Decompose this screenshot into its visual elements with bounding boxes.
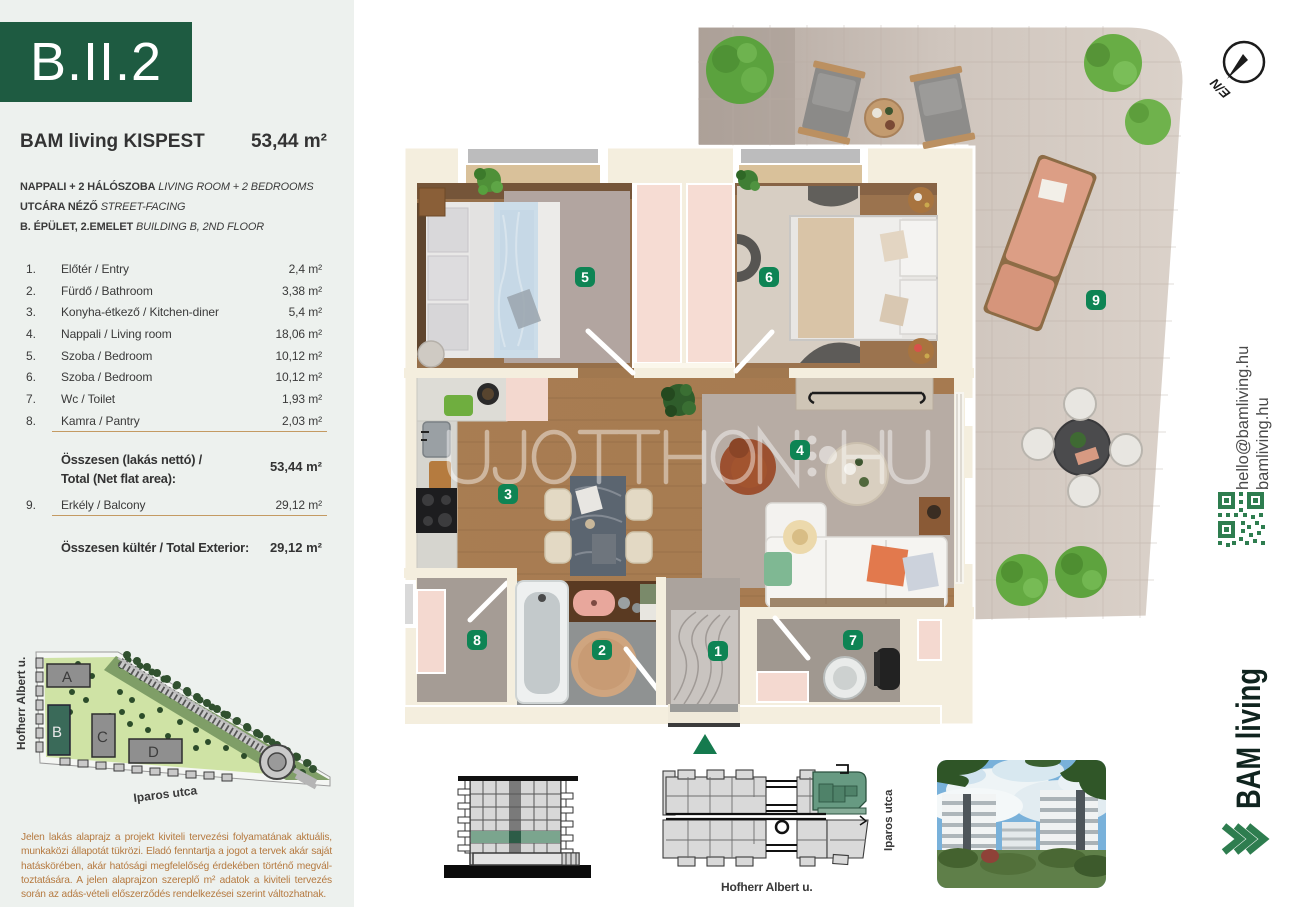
svg-text:bamliving.hu: bamliving.hu [1254,397,1272,490]
svg-text:A: A [62,669,72,686]
svg-text:BAM living: BAM living [1230,668,1268,809]
svg-text:4: 4 [796,442,804,458]
svg-text:C: C [97,729,108,746]
svg-text:5: 5 [581,269,589,285]
svg-text:B: B [52,724,62,741]
svg-text:8: 8 [473,632,481,648]
svg-text:6: 6 [765,269,773,285]
svg-text:Iparos utca: Iparos utca [133,783,199,805]
svg-text:9: 9 [1092,292,1100,308]
svg-text:hello@bamliving.hu: hello@bamliving.hu [1234,346,1252,490]
svg-text:Hofherr Albert u.: Hofherr Albert u. [721,880,813,894]
svg-text:Hofherr Albert u.: Hofherr Albert u. [14,657,28,750]
svg-text:2: 2 [598,642,606,658]
svg-text:D: D [148,744,159,761]
svg-text:3: 3 [504,486,512,502]
svg-text:1: 1 [714,643,722,659]
svg-text:7: 7 [849,632,857,648]
svg-text:Iparos utca: Iparos utca [883,789,895,851]
svg-text:E/N: E/N [1207,75,1233,101]
